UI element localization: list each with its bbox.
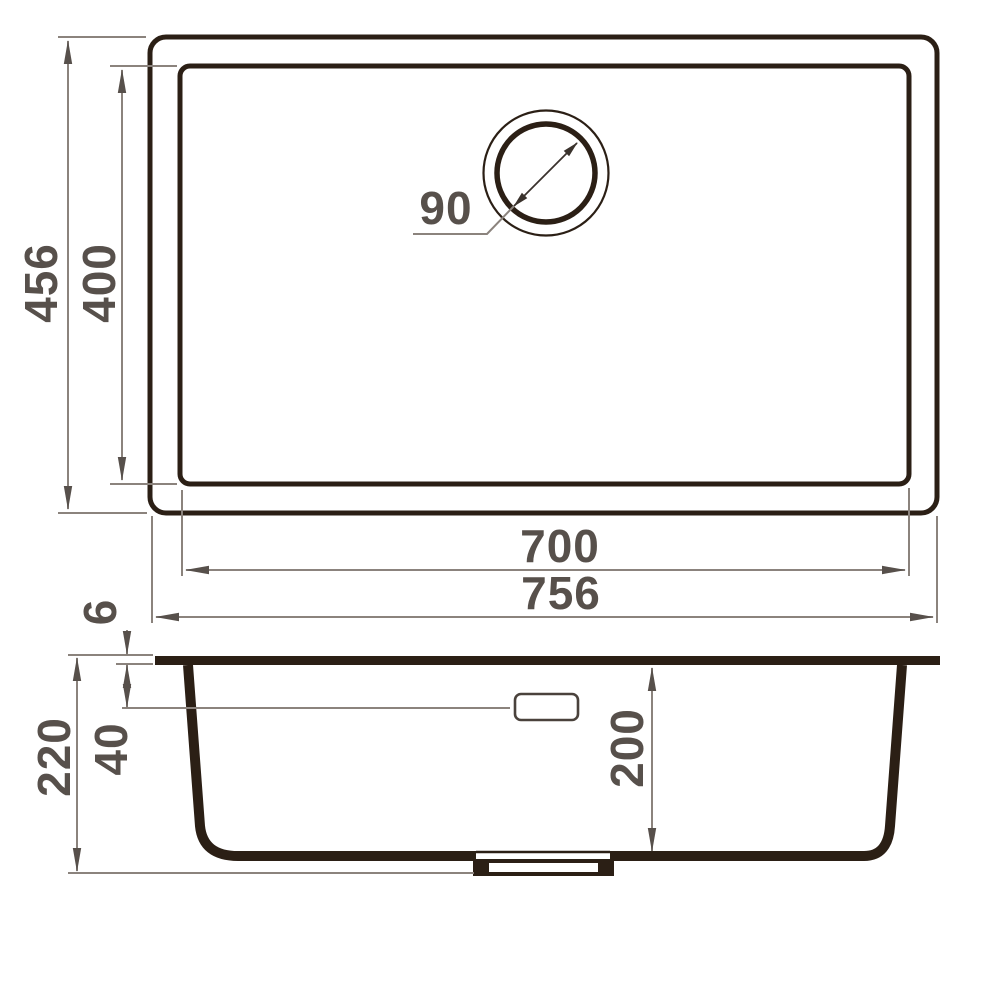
dim-label-bowl-inner-depth: 200 [601,708,653,788]
section-view-dimensions [68,630,652,873]
sink-outer-rim-outline [150,37,937,513]
dim-label-overflow-offset: 40 [85,722,137,775]
dim-label-bowl-width: 700 [520,520,600,572]
drain-boss-slot [489,863,598,872]
section-rim-flange [155,656,940,665]
dim-label-bowl-depth: 400 [73,243,125,323]
dim-label-overall-width: 756 [521,567,601,619]
section-view: 6 220 40 200 [28,599,940,876]
dim-label-overall-depth: 456 [15,243,67,323]
drawing-canvas: 456 400 90 700 756 [0,0,1000,1000]
dim-label-total-height: 220 [28,717,80,797]
dim-label-rim-thickness: 6 [74,599,126,626]
overflow-opening [515,694,578,720]
top-view: 456 400 90 700 756 [15,37,937,623]
top-view-dimensions [58,37,937,623]
sink-bowl-outline [180,66,909,484]
section-drain-fitting [473,847,614,876]
sink-technical-drawing: 456 400 90 700 756 [0,0,1000,1000]
dim-label-drain-diameter: 90 [419,182,472,234]
drain-diameter-arrow [514,143,577,206]
